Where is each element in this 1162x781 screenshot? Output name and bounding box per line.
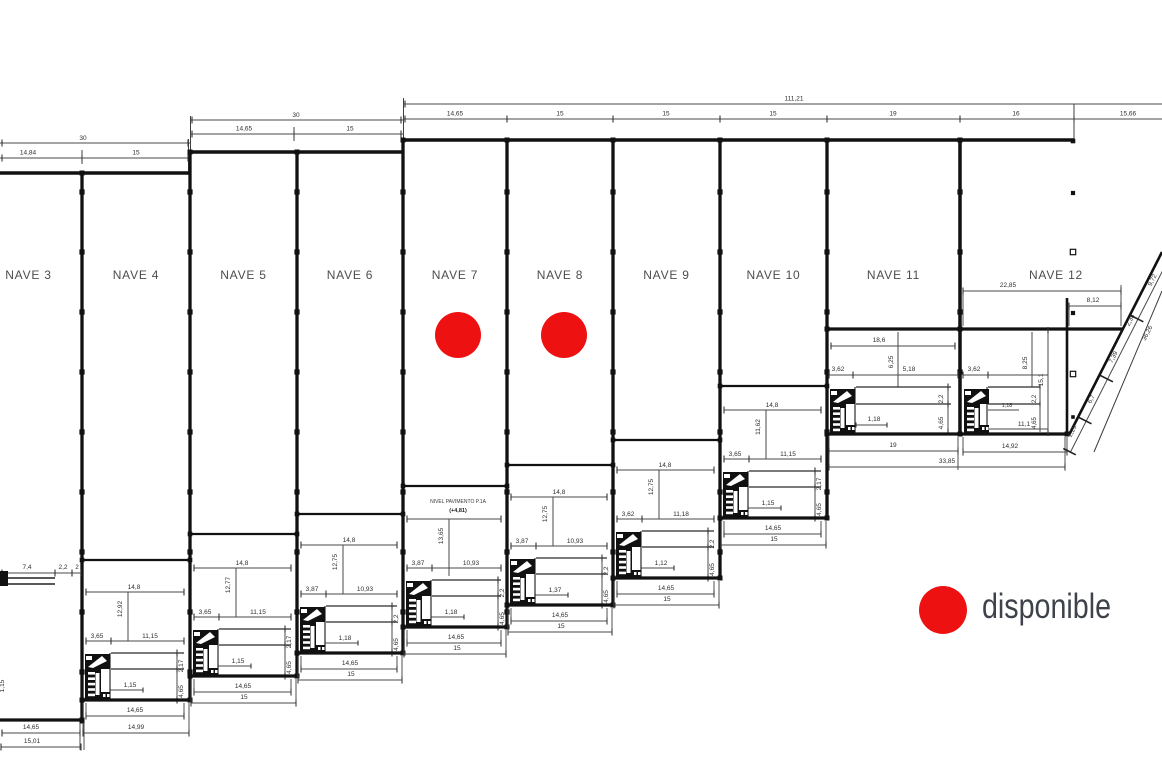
svg-text:15: 15 [770,536,778,543]
svg-text:14,65: 14,65 [23,724,40,731]
svg-text:4,65: 4,65 [178,685,185,698]
svg-text:30: 30 [292,112,300,119]
svg-text:14,65: 14,65 [127,707,144,714]
svg-text:4,65: 4,65 [938,416,945,429]
svg-text:4,65: 4,65 [603,590,610,603]
svg-text:3,87: 3,87 [306,586,319,593]
svg-text:14,99: 14,99 [128,724,145,731]
svg-text:2,17: 2,17 [286,635,293,648]
svg-text:14,92: 14,92 [1002,443,1019,450]
svg-text:12,75: 12,75 [542,505,549,522]
svg-text:11,62: 11,62 [755,419,762,435]
svg-text:14,65: 14,65 [235,683,252,690]
svg-text:11,15: 11,15 [142,633,158,640]
svg-text:NAVE 3: NAVE 3 [5,268,52,282]
svg-text:7,4: 7,4 [22,564,31,571]
svg-text:14,65: 14,65 [236,126,253,133]
svg-text:8,25: 8,25 [1022,356,1029,369]
svg-text:14,8: 14,8 [128,584,141,591]
svg-text:15: 15 [346,126,354,133]
svg-text:14,65: 14,65 [447,111,464,118]
svg-text:1,15: 1,15 [0,679,6,692]
svg-text:4,65: 4,65 [286,661,293,674]
svg-text:NAVE 5: NAVE 5 [220,268,267,282]
svg-text:NAVE 12: NAVE 12 [1029,268,1083,282]
svg-text:19: 19 [889,442,897,449]
svg-text:15: 15 [663,596,671,603]
svg-text:3,62: 3,62 [968,366,981,373]
svg-text:1,15: 1,15 [124,682,137,689]
svg-text:15: 15 [769,111,777,118]
svg-text:2,2: 2,2 [58,564,67,571]
svg-text:14,65: 14,65 [448,634,465,641]
svg-text:4,65: 4,65 [1032,417,1038,429]
svg-text:3,62: 3,62 [832,366,845,373]
svg-text:22,85: 22,85 [1000,282,1017,289]
svg-text:15: 15 [347,671,355,678]
svg-text:2,2: 2,2 [938,394,945,403]
svg-text:14,65: 14,65 [552,612,569,619]
svg-text:1,15: 1,15 [762,500,775,507]
svg-text:1,18: 1,18 [445,609,458,616]
svg-text:11,18: 11,18 [673,511,689,518]
svg-text:1,12: 1,12 [655,560,668,567]
svg-text:1,18: 1,18 [868,416,881,423]
svg-text:3,65: 3,65 [199,609,212,616]
svg-text:33,85: 33,85 [939,458,956,465]
svg-text:3,62: 3,62 [622,511,635,518]
svg-text:12,75: 12,75 [332,553,339,570]
svg-text:11,15: 11,15 [780,451,796,458]
svg-text:30: 30 [79,135,87,142]
svg-text:1,18: 1,18 [339,635,352,642]
svg-text:2,2: 2,2 [603,566,610,575]
svg-text:19: 19 [889,111,897,118]
svg-text:4,65: 4,65 [816,503,823,516]
svg-text:NIVEL PAVIMENTO P.1A: NIVEL PAVIMENTO P.1A [430,499,487,505]
svg-text:NAVE 6: NAVE 6 [327,268,374,282]
svg-text:15: 15 [240,694,248,701]
svg-text:14,65: 14,65 [342,660,359,667]
svg-text:15,01: 15,01 [24,738,41,745]
svg-text:14,8: 14,8 [766,402,779,409]
svg-text:2,17: 2,17 [816,477,823,490]
svg-text:12,77: 12,77 [225,576,232,593]
svg-text:3,65: 3,65 [91,633,104,640]
svg-text:14,8: 14,8 [553,489,566,496]
svg-text:14,84: 14,84 [20,150,37,157]
svg-text:NAVE 11: NAVE 11 [867,268,920,282]
svg-text:15: 15 [556,111,564,118]
svg-text:15: 15 [662,111,670,118]
svg-text:10,93: 10,93 [463,560,480,567]
svg-text:14,65: 14,65 [765,525,782,532]
svg-text:3,87: 3,87 [412,560,425,567]
svg-text:2,2: 2,2 [393,614,400,623]
svg-text:(+4,81): (+4,81) [449,508,467,514]
svg-text:11,15: 11,15 [250,609,266,616]
svg-text:8,12: 8,12 [1087,297,1100,304]
svg-text:12,92: 12,92 [117,600,124,617]
svg-text:NAVE 4: NAVE 4 [113,268,160,282]
svg-text:16: 16 [1012,111,1020,118]
svg-text:disponible: disponible [982,587,1111,626]
svg-text:4,65: 4,65 [393,638,400,651]
svg-text:15: 15 [453,645,461,652]
svg-text:3,65: 3,65 [729,451,742,458]
svg-text:1,18: 1,18 [1002,403,1013,409]
svg-text:15: 15 [557,623,565,630]
svg-text:2,2: 2,2 [499,588,506,597]
svg-text:4,65: 4,65 [499,612,506,625]
svg-text:2,17: 2,17 [178,659,185,672]
svg-text:10,93: 10,93 [567,538,584,545]
svg-text:12,75: 12,75 [648,478,655,495]
svg-text:10,93: 10,93 [357,586,374,593]
svg-text:2,2: 2,2 [709,539,716,548]
svg-text:1,37: 1,37 [549,587,562,594]
svg-text:13,65: 13,65 [438,527,445,544]
svg-text:15: 15 [132,150,140,157]
svg-text:14,8: 14,8 [659,462,672,469]
svg-text:5,18: 5,18 [903,366,916,373]
svg-text:NAVE 7: NAVE 7 [432,268,479,282]
svg-text:11,1: 11,1 [1018,421,1031,428]
svg-text:14,8: 14,8 [343,537,356,544]
svg-text:14,65: 14,65 [658,585,675,592]
svg-text:2,2: 2,2 [1032,394,1038,403]
svg-text:NAVE 10: NAVE 10 [746,268,800,282]
svg-text:4,65: 4,65 [709,563,716,576]
svg-text:1,15: 1,15 [232,658,245,665]
svg-text:14,8: 14,8 [236,560,249,567]
svg-text:111,21: 111,21 [785,96,804,103]
svg-text:6,25: 6,25 [888,355,895,368]
svg-text:3,87: 3,87 [516,538,529,545]
svg-text:NAVE 8: NAVE 8 [537,268,584,282]
svg-text:15,66: 15,66 [1120,111,1137,118]
svg-text:18,6: 18,6 [873,337,886,344]
svg-text:NAVE 9: NAVE 9 [643,268,690,282]
